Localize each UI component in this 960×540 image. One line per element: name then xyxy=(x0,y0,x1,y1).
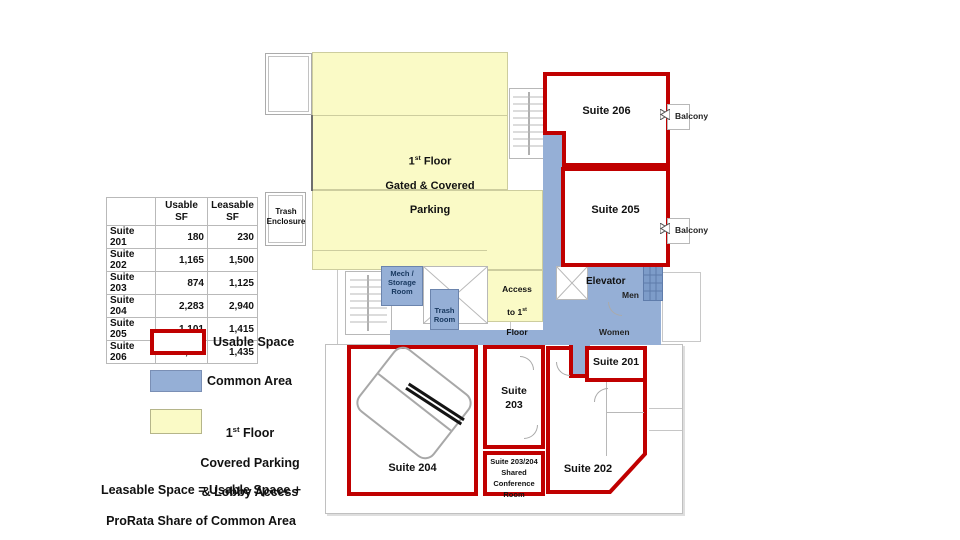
row-label: Suite 204 xyxy=(107,295,156,318)
leasable-formula: Leasable Space = Usable Space + ProRata … xyxy=(92,467,310,540)
suite-203-label: Suite 203 xyxy=(483,384,545,412)
parking-level-line xyxy=(313,250,487,251)
site-boundary-wall xyxy=(311,115,313,191)
table-corner-cell xyxy=(107,198,156,226)
legend-common-swatch xyxy=(150,370,202,392)
legend-usable-swatch xyxy=(150,329,206,355)
usable-value: 1,165 xyxy=(156,249,208,272)
parking-level-line xyxy=(313,115,507,116)
balcony-label: Balcony xyxy=(675,111,708,121)
table-row: Suite 204 2,283 2,940 xyxy=(107,295,258,318)
wall-line xyxy=(649,408,682,409)
men-room-label: Men xyxy=(622,290,639,300)
wall-line xyxy=(606,412,644,413)
balcony-door-icon xyxy=(660,223,670,234)
balcony-label: Balcony xyxy=(675,225,708,235)
usable-value: 180 xyxy=(156,226,208,249)
suite-206-label: Suite 206 xyxy=(543,105,670,117)
ramp-structure xyxy=(265,53,312,115)
legend-usable-label: Usable Space xyxy=(213,335,294,349)
shared-conference-label: Suite 203/204 Shared Conference Room xyxy=(482,456,546,500)
trash-enclosure-label: Trash Enclosure xyxy=(260,207,312,227)
row-label: Suite 205 xyxy=(107,318,156,341)
suite-205-label: Suite 205 xyxy=(561,204,670,216)
suite-202-label: Suite 202 xyxy=(548,463,628,475)
ramp-inner-outline xyxy=(268,56,309,112)
elevator-label: Elevator xyxy=(586,276,625,287)
elevator-shaft xyxy=(556,266,588,300)
women-room-label: Women xyxy=(599,327,630,337)
table-row: Suite 203 874 1,125 xyxy=(107,272,258,295)
suite-205-room xyxy=(561,167,670,267)
usable-value: 874 xyxy=(156,272,208,295)
floorplan-slide: 1st Floor Gated & Covered Parking Trash … xyxy=(0,0,960,540)
legend-common-label: Common Area xyxy=(207,374,292,388)
table-header-leasable: Leasable SF xyxy=(208,198,258,226)
table-header-row: Usable SF Leasable SF xyxy=(107,198,258,226)
table-row: Suite 201 180 230 xyxy=(107,226,258,249)
row-label: Suite 202 xyxy=(107,249,156,272)
suite-206-corridor-notch xyxy=(543,131,566,167)
row-label: Suite 201 xyxy=(107,226,156,249)
leasable-value: 1,125 xyxy=(208,272,258,295)
trash-room-label: Trash Room xyxy=(426,306,463,324)
table-header-usable: Usable SF xyxy=(156,198,208,226)
row-label: Suite 203 xyxy=(107,272,156,295)
leasable-value: 230 xyxy=(208,226,258,249)
wall-line xyxy=(649,430,682,431)
mech-storage-label: Mech / Storage Room xyxy=(381,269,423,296)
utility-shaft-hatched xyxy=(643,266,663,301)
suite-201-label: Suite 201 xyxy=(585,356,647,368)
leasable-value: 2,940 xyxy=(208,295,258,318)
parking-label: 1st Floor Gated & Covered Parking xyxy=(330,141,530,228)
leasable-value: 1,500 xyxy=(208,249,258,272)
table-row: Suite 202 1,165 1,500 xyxy=(107,249,258,272)
balcony-door-icon xyxy=(660,109,670,120)
terrace-outline xyxy=(662,272,701,342)
usable-value: 2,283 xyxy=(156,295,208,318)
suite-204-label: Suite 204 xyxy=(347,462,478,474)
row-label: Suite 206 xyxy=(107,341,156,364)
